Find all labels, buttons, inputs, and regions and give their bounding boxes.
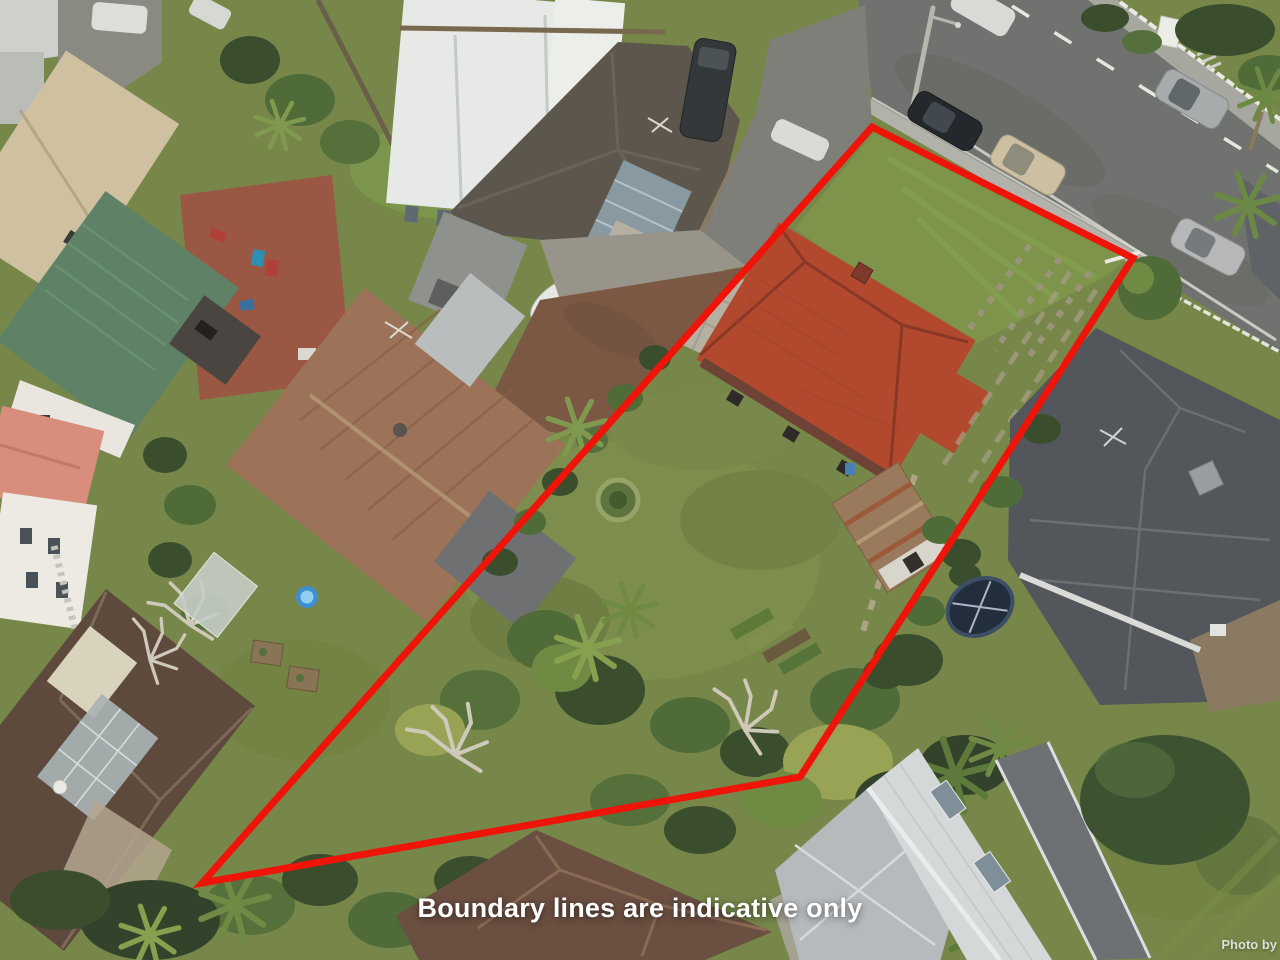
aerial-property-photo: Boundary lines are indicative only Photo… (0, 0, 1280, 960)
parked-ute (91, 2, 148, 35)
satellite-dish-icon (53, 780, 67, 794)
watermark-text: Photo by (1221, 937, 1277, 952)
disclaimer-text: Boundary lines are indicative only (418, 893, 863, 924)
laundry-item (845, 463, 855, 475)
chimney-pot (393, 423, 407, 437)
white-walls (0, 492, 97, 629)
ac-unit (1210, 624, 1226, 636)
